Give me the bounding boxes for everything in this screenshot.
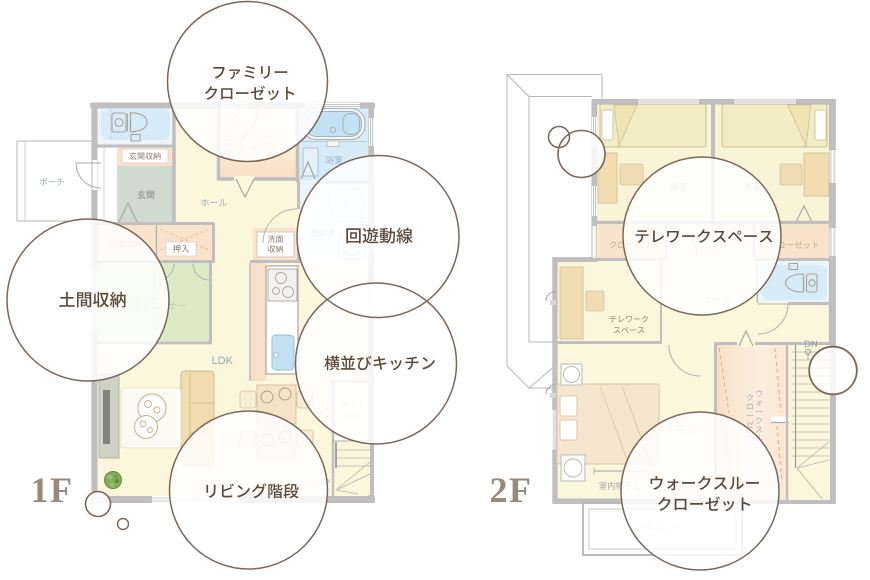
svg-text:DN: DN (804, 339, 818, 350)
svg-text:1F: 1F (31, 470, 74, 510)
svg-text:LDK: LDK (212, 355, 234, 367)
svg-text:2F: 2F (490, 470, 533, 510)
